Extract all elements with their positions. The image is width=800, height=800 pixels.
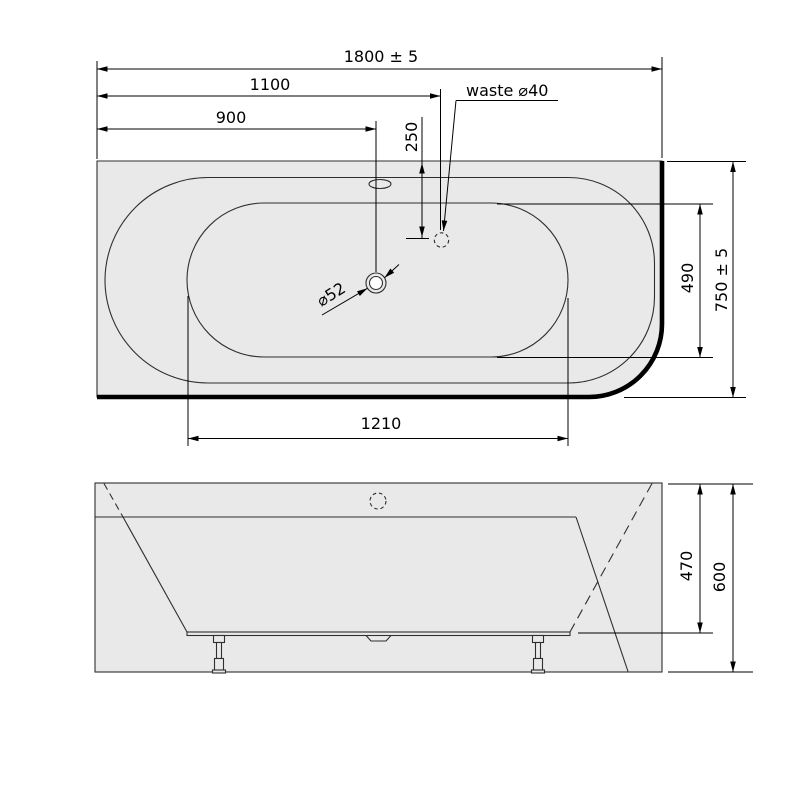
drain-hole-inner xyxy=(370,277,383,290)
dim-label-900: 900 xyxy=(216,108,247,127)
dim-label-490: 490 xyxy=(678,263,697,294)
overflow-hole xyxy=(369,180,391,189)
dim-label-1100: 1100 xyxy=(250,75,291,94)
side-outline xyxy=(95,483,662,672)
dim-label-750: 750 ± 5 xyxy=(712,248,731,312)
dim-label-600: 600 xyxy=(710,562,729,593)
bathtub-technical-drawing: 1800 ± 5 1100 900 250 waste ⌀40 ⌀52 750 … xyxy=(0,0,800,800)
dim-label-1800: 1800 ± 5 xyxy=(344,47,418,66)
technical-drawing-page: 1800 ± 5 1100 900 250 waste ⌀40 ⌀52 750 … xyxy=(0,0,800,800)
dimension-1800: 1800 ± 5 xyxy=(97,47,662,159)
side-view xyxy=(95,483,662,673)
dim-label-1210: 1210 xyxy=(361,414,402,433)
dim-label-470: 470 xyxy=(677,551,696,582)
waste-label: waste ⌀40 xyxy=(466,81,548,100)
dim-label-250: 250 xyxy=(402,122,421,153)
top-view xyxy=(97,161,662,397)
